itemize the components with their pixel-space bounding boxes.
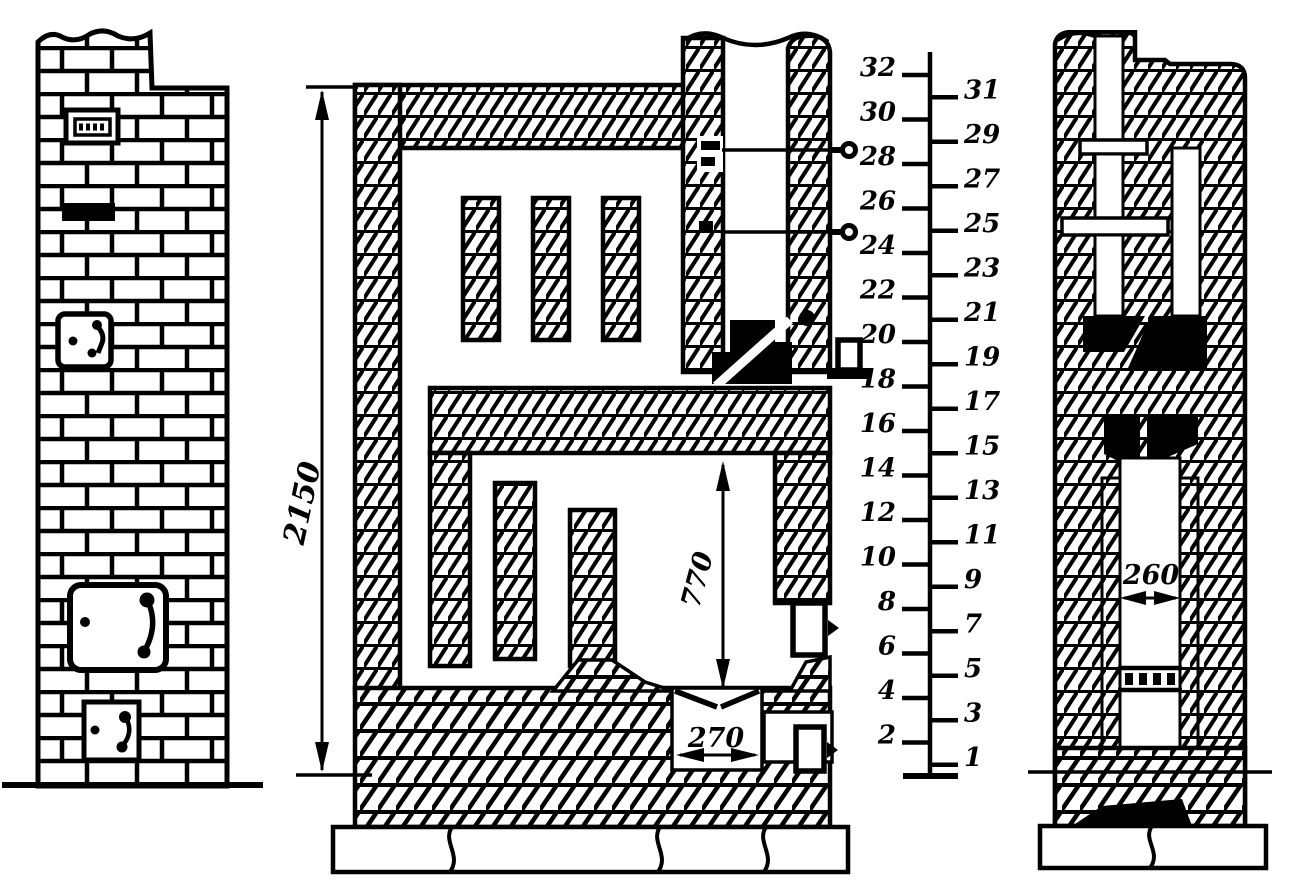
flue-slot	[1095, 154, 1123, 218]
course-row-label: 21	[963, 298, 1000, 328]
front-elevation-view	[2, 31, 263, 786]
firebox-left-wall	[570, 510, 615, 666]
course-row-label: 28	[859, 142, 896, 172]
dimension-channel-width: 260	[1120, 560, 1180, 605]
course-row-label: 1	[964, 743, 982, 773]
upper-baffle-pillar	[603, 198, 639, 340]
flue-slot-rear	[1172, 148, 1200, 316]
course-row-label: 22	[859, 276, 896, 306]
course-row-label: 17	[964, 387, 1000, 417]
soot-plug	[799, 310, 815, 326]
firebox-right-hanging-wall	[775, 453, 830, 603]
course-row-label: 9	[964, 565, 982, 595]
course-row-label: 11	[964, 520, 1000, 550]
top-slab	[355, 85, 685, 148]
course-row-label: 16	[860, 409, 896, 439]
damper-slot	[62, 203, 115, 221]
course-row-label: 2	[877, 721, 896, 751]
channel-width-label: 260	[1122, 560, 1180, 591]
cleanout-door	[58, 314, 111, 367]
fire-door	[70, 585, 166, 670]
flue-slot	[1095, 235, 1123, 316]
course-row-label: 13	[964, 476, 1000, 506]
section-fire-door	[793, 603, 839, 655]
course-row-label: 3	[964, 698, 982, 728]
course-row-label: 18	[860, 365, 896, 395]
stove-drawing: 2150 770 270 123456789101112131415161718…	[0, 0, 1291, 883]
course-row-label: 31	[964, 75, 1000, 105]
inner-left-wall	[430, 453, 470, 666]
chimney-left-wall	[683, 38, 723, 372]
course-scale-ruler: 1234567891011121314151617181920212223242…	[859, 52, 1000, 776]
upper-baffle-pillar	[463, 198, 499, 340]
course-row-label: 20	[859, 320, 896, 350]
course-row-label: 6	[878, 632, 896, 662]
damper-guide-bracket	[701, 157, 715, 166]
stove-drawing-canvas: 2150 770 270 123456789101112131415161718…	[0, 0, 1291, 883]
course-row-label: 4	[878, 676, 896, 706]
course-row-label: 14	[860, 454, 896, 484]
lower-baffle-pillar	[495, 483, 535, 659]
course-row-label: 27	[963, 164, 1000, 194]
course-row-label: 32	[860, 53, 896, 83]
course-row-label: 8	[877, 587, 896, 617]
channel-lining-right	[1180, 478, 1198, 748]
course-row-label: 10	[860, 543, 896, 573]
left-outer-wall	[355, 85, 400, 693]
course-row-label: 30	[860, 98, 896, 128]
upper-baffle-pillar	[533, 198, 569, 340]
course-row-label: 7	[964, 609, 982, 639]
flue-slot	[1095, 36, 1123, 140]
main-cross-section-view: 2150 770 270	[277, 16, 870, 872]
damper-plate-upper	[1080, 140, 1147, 154]
course-row-label: 5	[964, 654, 982, 684]
damper-guide-nub	[699, 221, 713, 233]
damper-guide-bracket	[701, 141, 720, 150]
course-row-label: 12	[860, 498, 896, 528]
course-row-label: 29	[963, 120, 1000, 150]
firebox-channel	[1120, 458, 1180, 748]
course-row-label: 23	[963, 253, 1000, 283]
firebox-height-label: 770	[676, 548, 721, 611]
course-row-label: 26	[859, 187, 896, 217]
middle-shelf	[430, 388, 830, 453]
foundation-slab-side	[1040, 826, 1266, 868]
dimension-firebox-height: 770	[676, 461, 730, 689]
foundation-slab-main	[333, 827, 848, 872]
course-row-label: 24	[859, 231, 896, 261]
side-cross-section-view: 260	[1028, 14, 1272, 868]
course-row-label: 19	[964, 342, 1000, 372]
channel-lining-left	[1102, 478, 1120, 748]
view-damper-vent	[66, 110, 118, 143]
course-row-label: 25	[963, 209, 1000, 239]
damper-plate-lower	[1062, 218, 1168, 235]
ash-door	[84, 702, 139, 760]
course-row-label: 15	[964, 431, 1000, 461]
